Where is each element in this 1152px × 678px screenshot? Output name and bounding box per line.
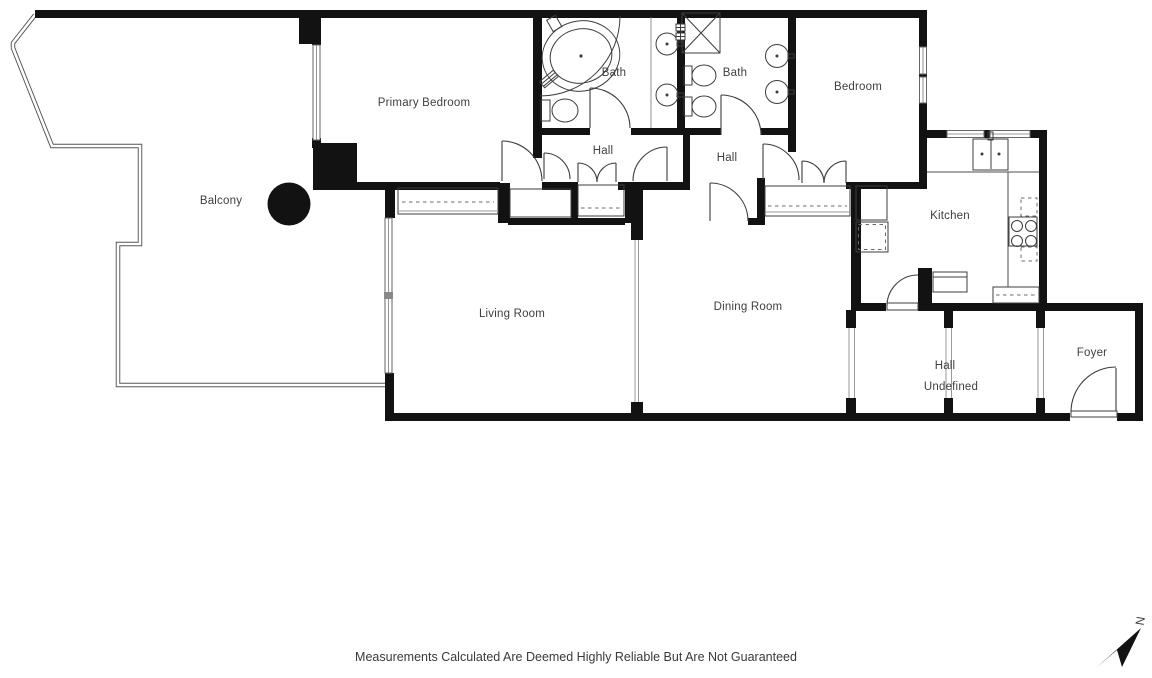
room-label-hall1: Hall bbox=[593, 145, 614, 157]
floor-plan-svg: Balcony Primary Bedroom Bath Bath Bedroo… bbox=[0, 0, 1152, 678]
wall-openings bbox=[635, 240, 1044, 402]
room-label-hall2: Hall bbox=[717, 152, 738, 164]
windows bbox=[313, 45, 1030, 373]
room-labels: Balcony Primary Bedroom Bath Bath Bedroo… bbox=[200, 67, 1107, 393]
hall1-east-door bbox=[633, 147, 667, 181]
kitchen-window-1 bbox=[947, 131, 984, 138]
hall1-door-small bbox=[544, 153, 570, 179]
kitchen-door bbox=[887, 275, 918, 310]
disclaimer-text: Measurements Calculated Are Deemed Highl… bbox=[355, 650, 797, 664]
room-label-bath2: Bath bbox=[723, 67, 747, 79]
kitchen-window-2 bbox=[990, 131, 1030, 138]
north-arrow: N bbox=[1096, 615, 1148, 668]
room-label-balcony: Balcony bbox=[200, 195, 242, 207]
stove bbox=[1009, 217, 1037, 247]
room-label-undefined: Undefined bbox=[924, 381, 978, 393]
north-arrow-icon bbox=[1096, 628, 1141, 668]
room-label-bath1: Bath bbox=[602, 67, 626, 79]
foyer-entry-door bbox=[1071, 367, 1117, 417]
floor-plan-page: Balcony Primary Bedroom Bath Bath Bedroo… bbox=[0, 0, 1152, 678]
living-dining-divider bbox=[635, 240, 639, 402]
bedroom-window-1 bbox=[920, 47, 927, 74]
room-label-hall3: Hall bbox=[935, 360, 956, 372]
room-label-bedroom: Bedroom bbox=[834, 81, 882, 93]
counter-island bbox=[933, 272, 967, 292]
appliance-dashed-1 bbox=[1021, 198, 1037, 216]
toilet-1 bbox=[541, 99, 578, 122]
room-label-foyer: Foyer bbox=[1077, 347, 1107, 359]
hall-closet-2 bbox=[578, 185, 624, 216]
hall-closet-3 bbox=[765, 186, 850, 216]
north-arrow-letter: N bbox=[1132, 615, 1147, 626]
tub-faucet bbox=[540, 70, 559, 88]
hall1-closet-double-door bbox=[578, 163, 616, 182]
primary-bedroom-window bbox=[313, 45, 320, 140]
toilet-2b bbox=[684, 96, 716, 117]
bathtub bbox=[535, 13, 628, 100]
balcony-column bbox=[268, 183, 311, 226]
dining-room-door bbox=[710, 183, 748, 221]
living-room-window-wall bbox=[384, 218, 393, 373]
appliance-dashed-2 bbox=[1021, 247, 1037, 261]
counter-bottom bbox=[993, 287, 1039, 303]
room-label-primary-bedroom: Primary Bedroom bbox=[378, 97, 470, 109]
room-label-living-room: Living Room bbox=[479, 308, 545, 320]
bedroom-window-2 bbox=[920, 77, 927, 103]
room-label-dining-room: Dining Room bbox=[714, 301, 783, 313]
living-room-closet bbox=[398, 188, 498, 214]
toilet-2a bbox=[684, 65, 716, 86]
bath2-door bbox=[721, 95, 761, 135]
bath2-fixtures bbox=[676, 13, 794, 117]
bath1-door bbox=[590, 88, 630, 128]
bedroom-double-door bbox=[802, 161, 846, 183]
room-label-kitchen: Kitchen bbox=[930, 210, 970, 222]
sliding-door-stop bbox=[384, 292, 393, 299]
hall-closet-1 bbox=[510, 189, 571, 217]
